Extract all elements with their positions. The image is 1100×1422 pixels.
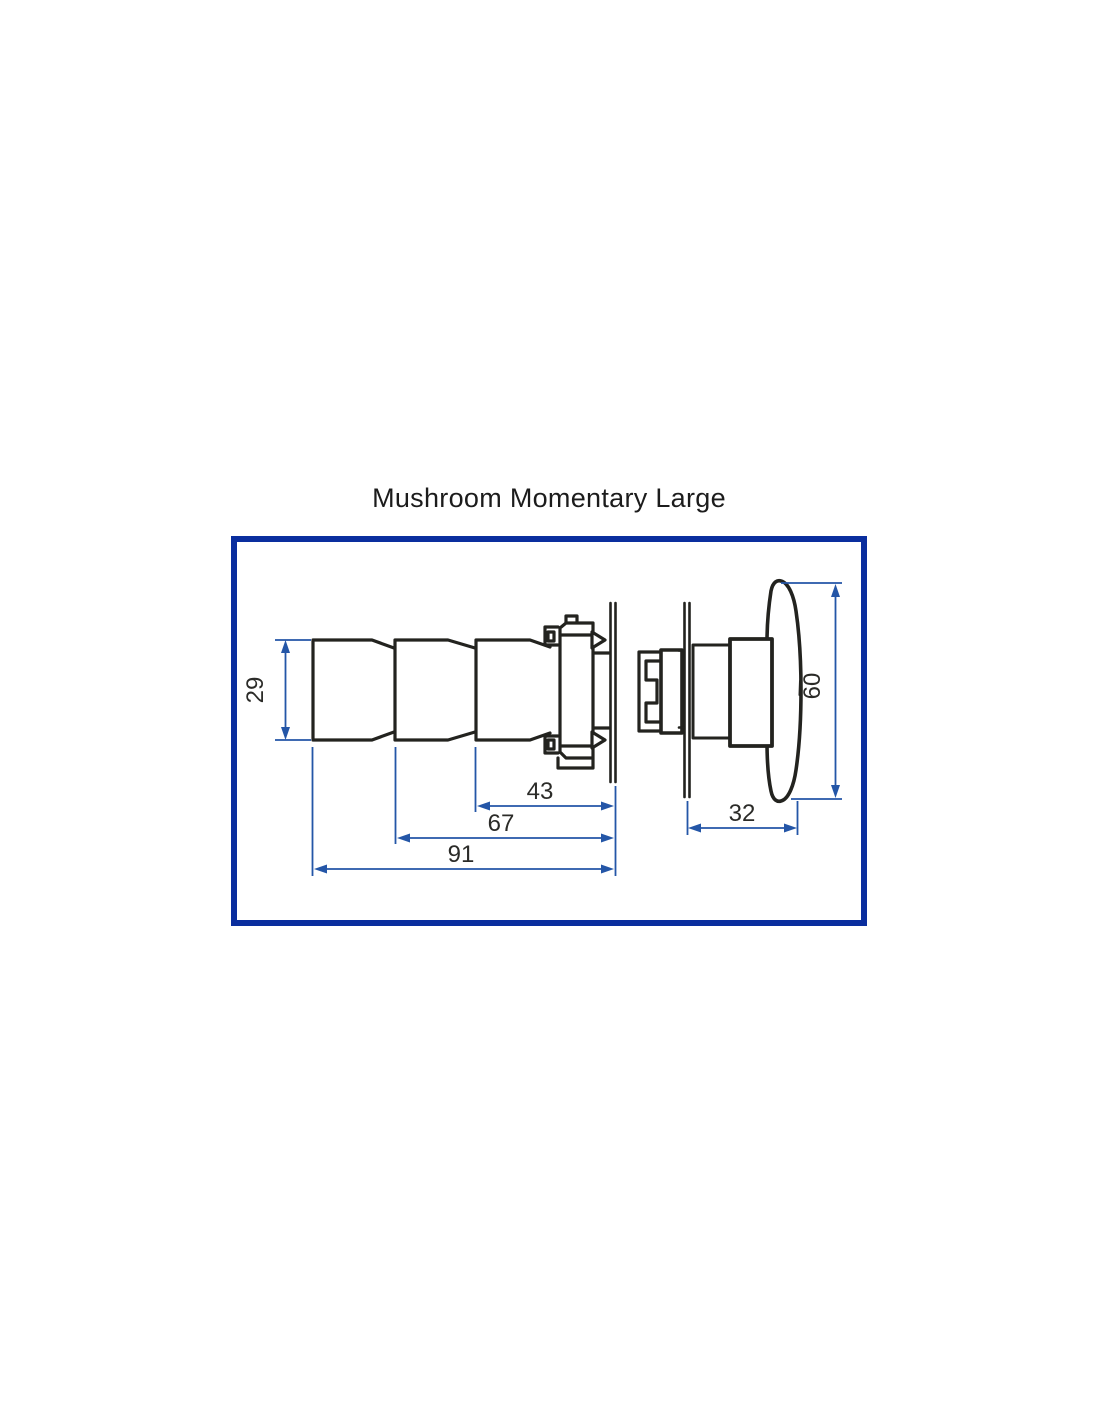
body-segment-3 bbox=[476, 640, 550, 740]
dim-29-lines bbox=[275, 640, 311, 740]
dim-label-60: 60 bbox=[799, 673, 826, 700]
page: Mushroom Momentary Large bbox=[0, 0, 1100, 1422]
snap-latch-bottom bbox=[592, 732, 605, 748]
arrow-67-left bbox=[397, 834, 410, 843]
body-segment-1 bbox=[313, 640, 394, 740]
part-outlines bbox=[313, 581, 801, 802]
plunger-assembly bbox=[639, 650, 682, 733]
dim-label-32: 32 bbox=[729, 800, 756, 827]
dim-label-43: 43 bbox=[527, 778, 554, 805]
page-title: Mushroom Momentary Large bbox=[372, 483, 726, 513]
panel-head-view bbox=[685, 603, 690, 797]
flange-clip-bottom bbox=[545, 736, 558, 753]
arrow-29-down bbox=[281, 727, 290, 740]
arrow-91-right bbox=[601, 865, 614, 874]
dim-label-91: 91 bbox=[448, 841, 475, 868]
snap-latch-top bbox=[592, 632, 605, 648]
body-segments bbox=[313, 640, 550, 740]
flange-clip-top bbox=[545, 627, 558, 645]
arrow-43-right bbox=[601, 802, 614, 811]
arrow-29-up bbox=[281, 640, 290, 653]
dim-label-67: 67 bbox=[488, 810, 515, 837]
dim-label-29: 29 bbox=[242, 677, 269, 704]
head-stem bbox=[730, 639, 772, 746]
arrow-60-down bbox=[831, 785, 840, 798]
head-collar bbox=[693, 645, 730, 738]
arrow-91-left bbox=[314, 865, 327, 874]
arrow-32-left bbox=[688, 824, 701, 833]
dimension-drawing: Mushroom Momentary Large bbox=[0, 0, 1100, 1422]
mounting-flange bbox=[545, 616, 609, 768]
plunger-retaining-clip bbox=[639, 652, 661, 731]
body-segment-2 bbox=[395, 640, 475, 740]
panel-left-view bbox=[611, 603, 616, 782]
plunger-body bbox=[661, 650, 682, 733]
arrow-60-up bbox=[831, 584, 840, 597]
arrow-67-right bbox=[601, 834, 614, 843]
arrow-32-right bbox=[784, 824, 797, 833]
